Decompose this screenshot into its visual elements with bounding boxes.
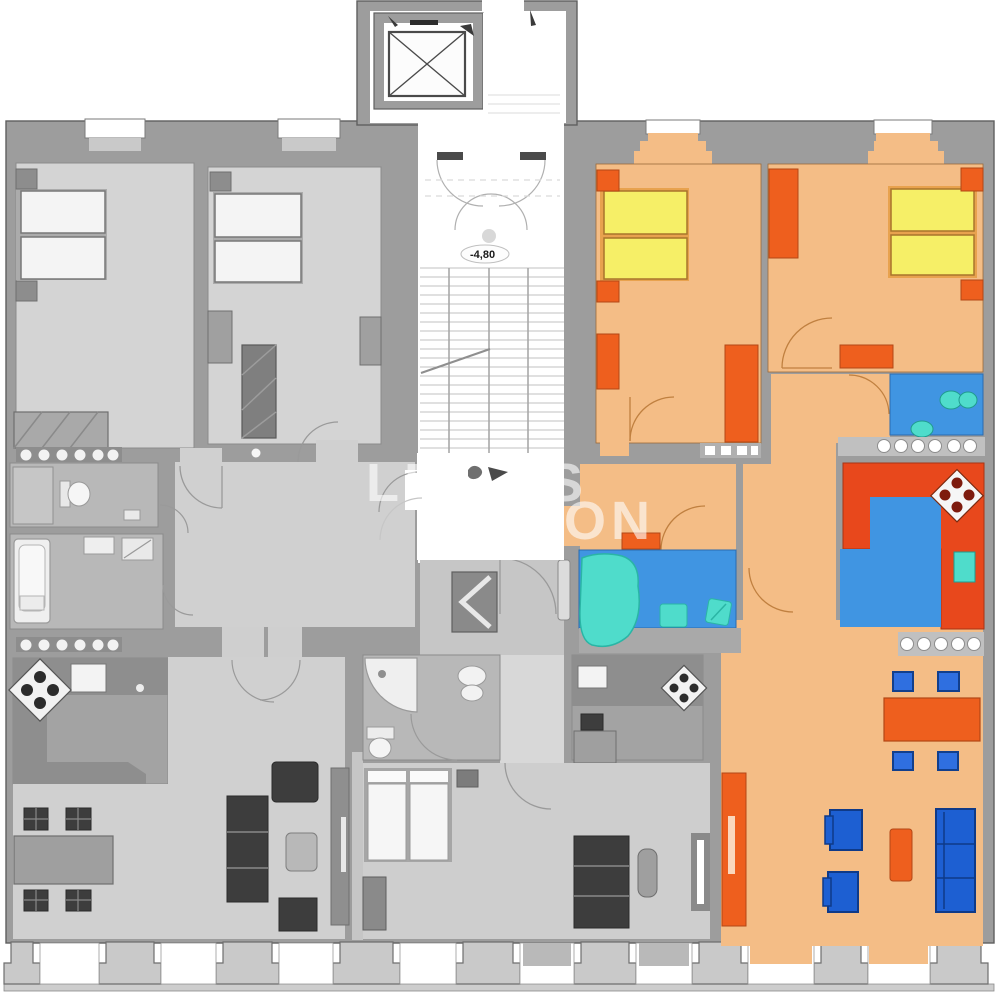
svg-text:ON: ON	[564, 491, 655, 551]
svg-text:-4,80: -4,80	[470, 249, 495, 261]
